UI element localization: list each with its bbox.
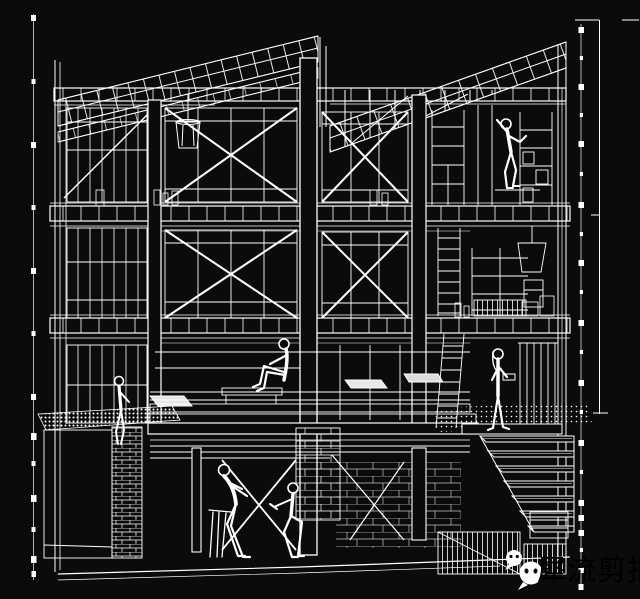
basement [44,427,570,580]
person-climbing-shelf [497,119,526,188]
stone-pier [296,428,340,520]
planter-box [44,427,142,558]
brick-wall [112,427,142,558]
person-sitting-on-platform [253,339,289,391]
right-chain-line [579,24,585,590]
book-row [474,300,526,316]
pendant-lamp [518,226,546,307]
post [192,448,201,552]
left-chain-line [31,14,37,580]
shelf-ladder [432,110,464,205]
person-sitting-on-stool [209,465,250,558]
white-table [345,380,387,388]
section-drawing [0,0,640,599]
staircase [462,424,574,532]
right-dimension-line [575,20,639,414]
watermark-text: 犀流剪报 [537,556,640,588]
white-table [404,374,443,382]
screenshot-canvas: 犀流剪报 [0,0,640,599]
post [412,448,426,540]
white-table [150,396,192,406]
wall-shelf [520,112,552,205]
shelving [472,248,528,316]
bench [222,388,282,404]
